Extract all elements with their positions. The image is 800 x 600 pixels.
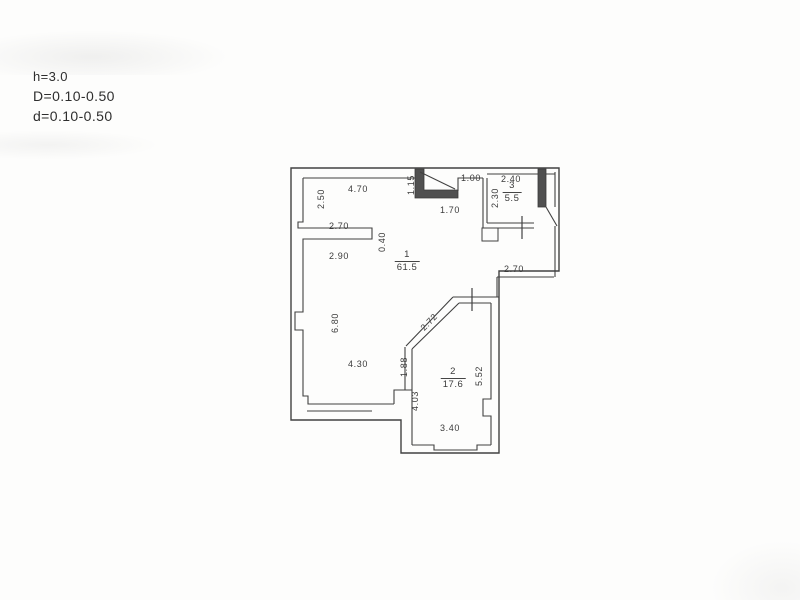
- entrance-door-leaf: [546, 207, 557, 226]
- room-area: 5.5: [503, 192, 522, 205]
- dimension-label: 4.03: [410, 391, 420, 411]
- floor-plan-drawing: [0, 0, 800, 600]
- dimension-label: 2.50: [316, 189, 326, 209]
- dimension-label: 0.40: [377, 232, 387, 252]
- room-label-1: 1 61.5: [395, 250, 420, 274]
- room-label-3: 3 5.5: [503, 181, 522, 205]
- dimension-label: 1.15: [406, 175, 416, 195]
- niche-diagonal: [420, 172, 455, 189]
- dimension-label: 4.70: [348, 184, 368, 194]
- room-label-2: 2 17.6: [441, 367, 466, 391]
- column: [482, 228, 498, 241]
- outer-wall-outline: [291, 168, 559, 453]
- room-number: 1: [395, 250, 420, 261]
- dimension-label: 2.70: [329, 221, 349, 231]
- room-area: 17.6: [441, 378, 466, 391]
- dimension-label: 1.88: [399, 357, 409, 377]
- dimension-label: 5.52: [474, 366, 484, 386]
- dimension-label: 2.30: [490, 188, 500, 208]
- room-number: 2: [441, 367, 466, 378]
- dimension-label: 3.40: [440, 423, 460, 433]
- dimension-label: 4.30: [348, 359, 368, 369]
- room-number: 3: [503, 181, 522, 192]
- niche-thick-wall: [415, 169, 458, 198]
- dimension-label: 2.70: [504, 264, 524, 274]
- room3-thick-wall: [538, 169, 546, 207]
- scanned-floor-plan-page: h=3.0 D=0.10-0.50 d=0.10-0.50 2.50 4.70 …: [0, 0, 800, 600]
- dimension-label: 6.80: [330, 313, 340, 333]
- room-area: 61.5: [395, 261, 420, 274]
- dimension-label: 1.00: [461, 173, 481, 183]
- dimension-label: 1.70: [440, 205, 460, 215]
- dimension-label: 2.90: [329, 251, 349, 261]
